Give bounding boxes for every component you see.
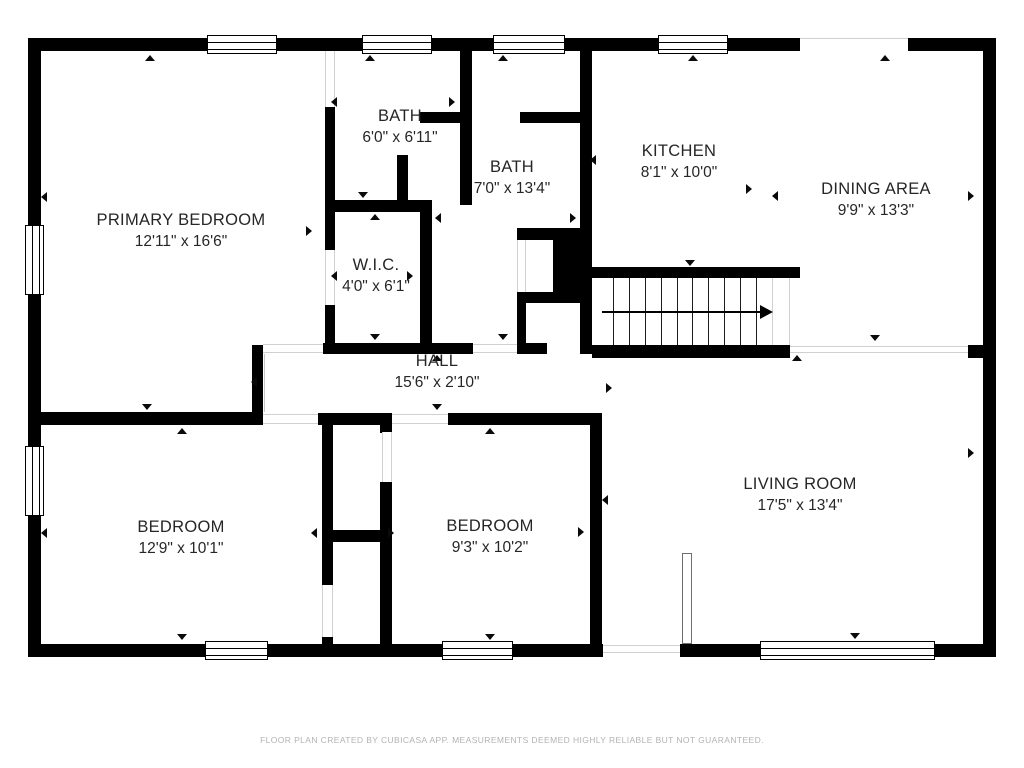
door-opening (517, 240, 526, 292)
wall-segment (580, 38, 592, 354)
wall-segment (592, 267, 800, 278)
window-frame-line (208, 49, 276, 50)
dimension-marker-down (485, 634, 495, 640)
room-label: W.I.C.4'0" x 6'1" (342, 254, 410, 298)
window (442, 641, 513, 660)
door-leaf-line (264, 354, 265, 412)
wall-segment (335, 200, 432, 212)
dimension-marker-left (311, 528, 317, 538)
room-name: KITCHEN (641, 140, 717, 162)
room-label: BATH6'0" x 6'11" (362, 105, 437, 149)
wall-segment (322, 530, 392, 542)
dimension-marker-right (570, 213, 576, 223)
stair-arrow-head (760, 305, 773, 319)
door-opening (392, 414, 448, 424)
dimension-marker-left (331, 271, 337, 281)
dimension-marker-down (870, 335, 880, 341)
room-label: BEDROOM12'9" x 10'1" (137, 516, 224, 560)
dimension-marker-right (746, 184, 752, 194)
wall-segment (28, 412, 262, 425)
window-frame-line (39, 447, 40, 515)
wall-segment (322, 425, 333, 585)
door-opening (322, 585, 333, 637)
wall-segment (592, 345, 790, 358)
window (205, 641, 268, 660)
window-frame-line (363, 42, 431, 43)
room-dimensions: 12'9" x 10'1" (137, 538, 224, 560)
dimension-marker-right (968, 448, 974, 458)
dimension-marker-up (498, 55, 508, 61)
dimension-marker-up (370, 214, 380, 220)
dimension-marker-down (177, 634, 187, 640)
dimension-marker-right (306, 226, 312, 236)
wall-segment (380, 482, 392, 647)
window-frame-line (363, 49, 431, 50)
room-name: DINING AREA (821, 178, 931, 200)
wall-segment (517, 303, 526, 343)
dimension-marker-down (358, 192, 368, 198)
room-label: KITCHEN8'1" x 10'0" (641, 140, 717, 184)
wall-segment (460, 38, 472, 205)
window-frame-line (443, 655, 512, 656)
dimension-marker-left (772, 191, 778, 201)
floor-plan-canvas: FLOOR PLAN CREATED BY CUBICASA APP. MEAS… (0, 0, 1024, 768)
dimension-marker-down (142, 404, 152, 410)
wall-segment (325, 107, 335, 250)
room-dimensions: 7'0" x 13'4" (474, 178, 550, 200)
wall-segment (322, 637, 333, 645)
window (25, 446, 44, 516)
dimension-marker-right (449, 97, 455, 107)
wall-segment (517, 343, 547, 354)
room-label: PRIMARY BEDROOM12'11" x 16'6" (97, 209, 266, 253)
dimension-marker-up (688, 55, 698, 61)
dimension-marker-down (498, 334, 508, 340)
wall-segment (397, 155, 408, 205)
window-frame-line (659, 49, 727, 50)
wall-segment (520, 112, 580, 123)
room-label: BATH7'0" x 13'4" (474, 156, 550, 200)
window (658, 35, 728, 54)
dimension-marker-right (388, 528, 394, 538)
window-frame-line (761, 648, 934, 649)
room-label: BEDROOM9'3" x 10'2" (446, 515, 533, 559)
door-opening (790, 346, 968, 353)
wall-segment (420, 212, 432, 345)
dimension-marker-down (432, 404, 442, 410)
dimension-marker-left (590, 155, 596, 165)
window-frame-line (443, 648, 512, 649)
wall-segment (318, 413, 392, 425)
window-frame-line (32, 447, 33, 515)
dimension-marker-down (685, 260, 695, 266)
wall-segment (325, 305, 335, 345)
window (362, 35, 432, 54)
dimension-marker-down (370, 334, 380, 340)
room-dimensions: 15'6" x 2'10" (394, 372, 479, 394)
door-opening (263, 344, 323, 353)
room-name: BEDROOM (446, 515, 533, 537)
window-frame-line (659, 42, 727, 43)
dimension-marker-right (968, 191, 974, 201)
room-label: LIVING ROOM17'5" x 13'4" (743, 473, 856, 517)
room-name: BEDROOM (137, 516, 224, 538)
dimension-marker-down (850, 633, 860, 639)
dimension-marker-right (606, 383, 612, 393)
dimension-marker-up (485, 428, 495, 434)
window-frame-line (494, 42, 564, 43)
room-name: BATH (362, 105, 437, 127)
wall-segment (28, 38, 41, 657)
disclaimer-text: FLOOR PLAN CREATED BY CUBICASA APP. MEAS… (0, 735, 1024, 745)
window-frame-line (32, 226, 33, 294)
door-opening (682, 553, 692, 644)
room-label: HALL15'6" x 2'10" (394, 350, 479, 394)
window (760, 641, 935, 660)
dimension-marker-left (602, 495, 608, 505)
window-frame-line (39, 226, 40, 294)
door-opening (382, 432, 392, 482)
dimension-marker-right (578, 527, 584, 537)
door-opening (772, 278, 790, 345)
room-name: PRIMARY BEDROOM (97, 209, 266, 231)
dimension-marker-left (435, 213, 441, 223)
wall-segment (968, 345, 983, 358)
room-name: W.I.C. (342, 254, 410, 276)
room-dimensions: 8'1" x 10'0" (641, 162, 717, 184)
room-dimensions: 12'11" x 16'6" (97, 231, 266, 253)
room-dimensions: 6'0" x 6'11" (362, 127, 437, 149)
room-dimensions: 9'9" x 13'3" (821, 200, 931, 222)
room-dimensions: 9'3" x 10'2" (446, 537, 533, 559)
stair-direction-arrow (602, 311, 762, 313)
wall-segment (983, 38, 996, 657)
door-opening (263, 414, 318, 424)
window-frame-line (761, 655, 934, 656)
door-opening (800, 38, 908, 51)
room-dimensions: 17'5" x 13'4" (743, 495, 856, 517)
wall-segment (28, 644, 603, 657)
dimension-marker-up (177, 428, 187, 434)
dimension-marker-left (41, 528, 47, 538)
room-name: HALL (394, 350, 479, 372)
window-frame-line (208, 42, 276, 43)
room-name: BATH (474, 156, 550, 178)
window-frame-line (206, 648, 267, 649)
wall-segment (590, 413, 602, 647)
dimension-marker-up (880, 55, 890, 61)
window-frame-line (494, 49, 564, 50)
window-frame-line (206, 655, 267, 656)
room-dimensions: 4'0" x 6'1" (342, 276, 410, 298)
dimension-marker-left (251, 377, 257, 387)
dimension-marker-left (331, 97, 337, 107)
dimension-marker-left (41, 192, 47, 202)
room-name: LIVING ROOM (743, 473, 856, 495)
dimension-marker-up (145, 55, 155, 61)
dimension-marker-up (792, 355, 802, 361)
window (493, 35, 565, 54)
wall-segment (553, 237, 587, 295)
door-opening (603, 645, 680, 653)
window (207, 35, 277, 54)
window (25, 225, 44, 295)
wall-segment (448, 413, 600, 425)
door-opening (473, 344, 517, 353)
dimension-marker-up (365, 55, 375, 61)
room-label: DINING AREA9'9" x 13'3" (821, 178, 931, 222)
